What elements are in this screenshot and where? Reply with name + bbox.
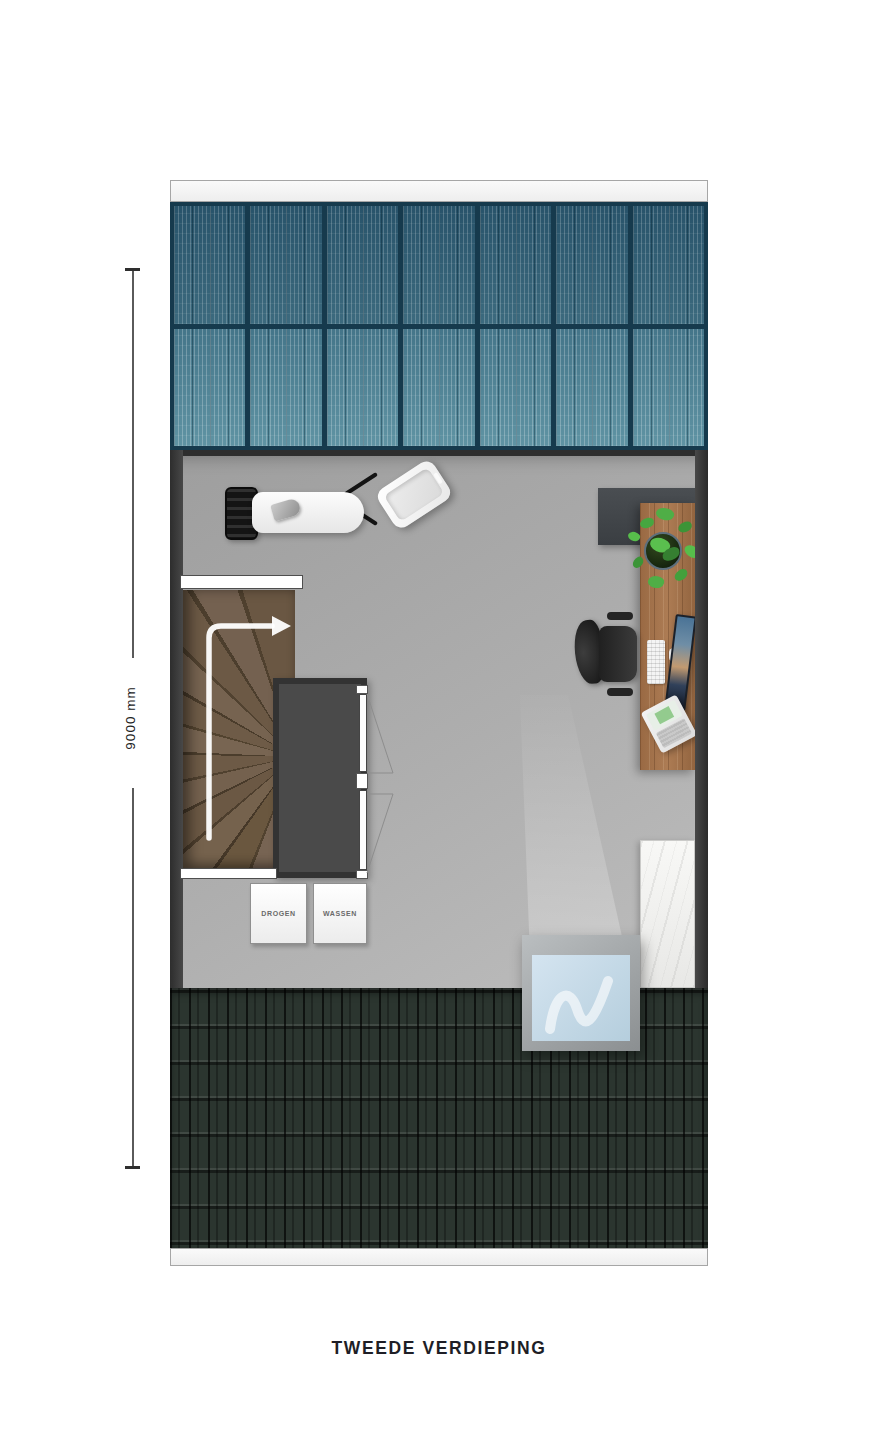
- floor-plan-canvas: DROGEN WASSEN: [0, 0, 877, 1440]
- stair-landing-edge-top: [180, 575, 303, 589]
- skylight-reflection-icon: [532, 955, 630, 1041]
- washer: WASSEN: [313, 883, 367, 944]
- stair-landing-edge-bottom: [180, 868, 277, 879]
- office-chair: [575, 610, 641, 696]
- floor-plan: DROGEN WASSEN: [170, 180, 708, 1267]
- potted-plant: [626, 506, 702, 594]
- solar-panel: [250, 329, 321, 447]
- wardrobe-hinge-top: [356, 685, 368, 694]
- wardrobe-door-bottom: [359, 790, 367, 870]
- wardrobe-hinge-bottom: [356, 870, 368, 879]
- solar-panel: [633, 329, 704, 447]
- washer-label: WASSEN: [323, 910, 357, 917]
- plant-leaf: [627, 530, 642, 544]
- solar-panel: [480, 206, 551, 324]
- solar-panel: [403, 329, 474, 447]
- door-swing-line-top: [367, 694, 393, 773]
- keyboard: [647, 640, 665, 684]
- dimension-line-lower: [132, 788, 134, 1168]
- solar-panel: [327, 206, 398, 324]
- door-swing-line-bottom: [367, 794, 393, 873]
- solar-panel: [250, 206, 321, 324]
- laundry-basket-white: [374, 458, 454, 532]
- dimension-line-upper: [132, 270, 134, 658]
- solar-panel-array: [170, 202, 708, 450]
- chair-armrest: [607, 612, 633, 620]
- solar-panel: [480, 329, 551, 447]
- solar-panel: [556, 329, 627, 447]
- plant-leaf: [672, 567, 689, 583]
- wall-right: [695, 450, 708, 988]
- roof-edge-bottom: [170, 1248, 708, 1266]
- wall-left: [170, 450, 183, 988]
- wardrobe-handle-middle: [356, 773, 368, 789]
- chair-armrest: [607, 688, 633, 696]
- dryer-label: DROGEN: [261, 910, 295, 917]
- plant-leaf: [654, 505, 675, 522]
- solar-panel: [556, 206, 627, 324]
- plant-leaf: [631, 555, 646, 570]
- skylight-glass: [532, 955, 630, 1041]
- wall-top: [170, 450, 708, 456]
- solar-panel: [403, 206, 474, 324]
- attic-room: DROGEN WASSEN: [170, 450, 708, 988]
- tall-cabinet-white: [640, 840, 695, 988]
- ironing-board: [252, 492, 364, 533]
- solar-panel: [633, 206, 704, 324]
- dimension-label: 9000 mm: [123, 658, 143, 778]
- plant-leaf: [677, 520, 693, 533]
- chair-seat: [599, 626, 637, 682]
- dryer: DROGEN: [250, 883, 307, 944]
- dimension-tick-bottom: [125, 1166, 140, 1169]
- wardrobe: [273, 678, 367, 878]
- solar-panel: [327, 329, 398, 447]
- page-title: TWEEDE VERDIEPING: [170, 1338, 708, 1359]
- roof-edge-top: [170, 180, 708, 202]
- plant-leaf: [639, 517, 655, 529]
- solar-panel: [174, 206, 245, 324]
- dimension-tick-top: [125, 268, 140, 271]
- solar-panel: [174, 329, 245, 447]
- wardrobe-door-top: [359, 694, 367, 772]
- skylight-window: [522, 935, 640, 1051]
- plant-leaf: [647, 574, 666, 590]
